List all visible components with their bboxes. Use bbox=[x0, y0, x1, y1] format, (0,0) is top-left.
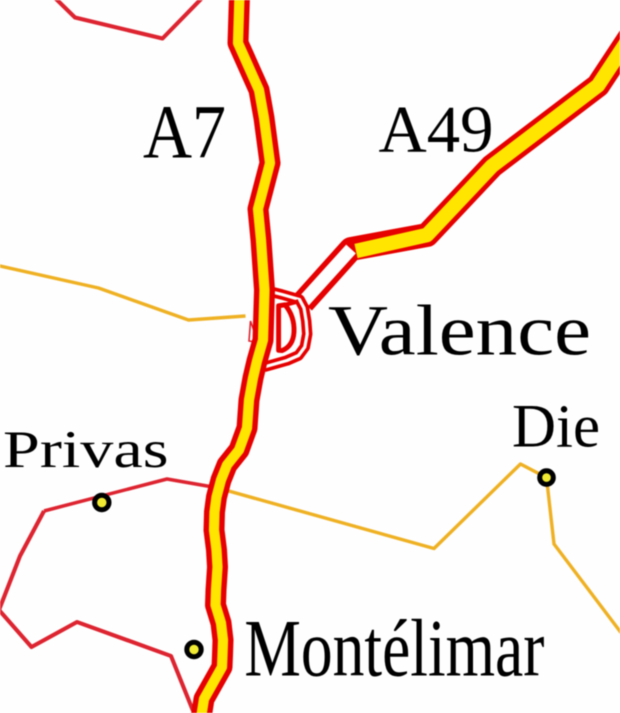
svg-text:Montélimar: Montélimar bbox=[244, 603, 544, 694]
svg-text:A49: A49 bbox=[379, 93, 494, 167]
svg-text:Die: Die bbox=[512, 394, 600, 461]
svg-text:A7: A7 bbox=[143, 90, 226, 174]
svg-text:Privas: Privas bbox=[3, 421, 169, 479]
svg-text:Valence: Valence bbox=[328, 292, 591, 371]
